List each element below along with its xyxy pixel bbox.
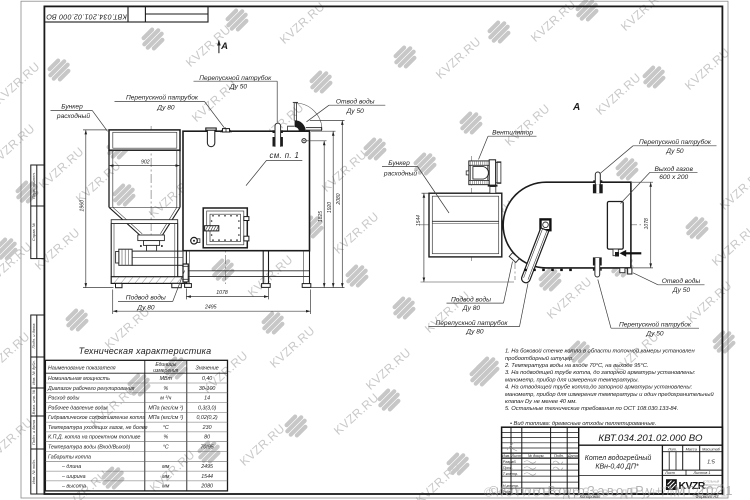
svg-text:1544: 1544: [201, 474, 213, 480]
svg-text:КВТ.034.201.02.000 ВО: КВТ.034.201.02.000 ВО: [46, 13, 127, 22]
svg-text:1078: 1078: [644, 218, 650, 229]
svg-text:©КотлоВодоЗаводРу+7МГ2021: ©КотлоВодоЗаводРу+7МГ2021: [489, 484, 735, 498]
svg-text:80: 80: [204, 435, 210, 441]
svg-text:Взам. инв. №: Взам. инв. №: [31, 389, 36, 414]
svg-text:– длина: – длина: [61, 464, 81, 470]
svg-text:• Вид топлива: древесные отх: • Вид топлива: древесные отходы пеллетир…: [510, 421, 656, 427]
svg-text:Подп. и дата: Подп. и дата: [31, 323, 36, 349]
svg-text:1:5: 1:5: [707, 460, 716, 466]
svg-text:14: 14: [204, 396, 210, 402]
svg-text:Ду 50: Ду 50: [672, 287, 691, 294]
svg-text:пробоотборный штуцер.: пробоотборный штуцер.: [505, 355, 574, 362]
svg-text:°С: °С: [163, 425, 169, 431]
svg-text:Инв. № дубл.: Инв. № дубл.: [31, 360, 36, 385]
svg-text:Дата: Дата: [567, 454, 578, 458]
svg-text:Ду 80: Ду 80: [136, 305, 155, 312]
svg-text:1920: 1920: [327, 202, 333, 213]
svg-text:Лист: Лист: [511, 454, 522, 458]
svg-text:Ду 50: Ду 50: [229, 84, 248, 91]
svg-text:Отвод воды: Отвод воды: [336, 98, 375, 106]
svg-text:30-100: 30-100: [199, 386, 216, 392]
svg-text:Габариты котла: Габариты котла: [48, 454, 91, 460]
svg-text:Листов 1: Листов 1: [693, 471, 711, 475]
svg-text:5. Остальные технические треб: 5. Остальные технические требования по О…: [505, 406, 678, 412]
svg-text:Температура уходящих газов, не: Температура уходящих газов, не более: [48, 425, 148, 431]
svg-text:А: А: [220, 41, 228, 52]
svg-text:1544: 1544: [416, 215, 422, 226]
svg-text:Ду 80: Ду 80: [156, 104, 175, 111]
svg-text:2080: 2080: [200, 484, 213, 490]
svg-text:м ³/ч: м ³/ч: [160, 396, 171, 402]
svg-text:см. п. 1: см. п. 1: [270, 151, 300, 160]
svg-text:А: А: [572, 102, 580, 113]
svg-text:мм: мм: [162, 464, 170, 470]
svg-text:Диапазон рабочего регулировани: Диапазон рабочего регулирования: [47, 386, 135, 392]
svg-text:Изм.: Изм.: [502, 454, 510, 458]
svg-text:Расход воды: Расход воды: [48, 396, 79, 402]
svg-text:Подвод воды: Подвод воды: [451, 295, 491, 303]
svg-text:манометр, прибор для измерени: манометр, прибор для измерения температу…: [505, 377, 639, 383]
svg-text:1. На боковой стенке котла в: 1. На боковой стенке котла в области топ…: [505, 348, 695, 355]
svg-text:мм: мм: [162, 484, 170, 490]
svg-text:Перепускной патрубок: Перепускной патрубок: [126, 94, 199, 102]
svg-text:Значение: Значение: [195, 366, 218, 372]
svg-text:0,3(3,0): 0,3(3,0): [198, 405, 216, 411]
svg-text:70/95: 70/95: [200, 445, 213, 451]
svg-text:2495: 2495: [204, 305, 217, 311]
svg-text:Пров.: Пров.: [503, 466, 513, 470]
svg-text:Наименование показателя: Наименование показателя: [48, 366, 116, 372]
svg-text:Выход газов: Выход газов: [654, 165, 693, 173]
svg-text:Ду 80: Ду 80: [465, 329, 484, 336]
svg-text:Подп. и дата: Подп. и дата: [31, 419, 36, 445]
svg-text:Ду 50: Ду 50: [346, 108, 365, 115]
svg-text:Ду 50: Ду 50: [665, 148, 684, 155]
svg-text:Ду 80: Ду 80: [462, 305, 481, 312]
svg-text:Бункер: Бункер: [388, 160, 410, 167]
svg-text:Бункер: Бункер: [61, 104, 83, 111]
svg-text:Рабочее давление воды: Рабочее давление воды: [48, 405, 107, 411]
svg-text:902: 902: [141, 159, 150, 165]
svg-text:Перепускной патрубок: Перепускной патрубок: [435, 319, 508, 327]
svg-text:0,40: 0,40: [202, 376, 212, 382]
svg-text:Разраб.: Разраб.: [503, 460, 517, 464]
svg-text:Ду 50: Ду 50: [645, 330, 664, 337]
svg-text:Перепускной патрубок: Перепускной патрубок: [639, 138, 712, 146]
svg-text:1825: 1825: [318, 211, 324, 222]
svg-text:Перв. примен.: Перв. примен.: [31, 172, 36, 199]
svg-text:Котел водогрейный: Котел водогрейный: [585, 454, 652, 462]
svg-text:600 х 200: 600 х 200: [659, 174, 688, 181]
svg-text:%: %: [163, 386, 168, 392]
svg-text:Гидравлическое сопротивление к: Гидравлическое сопротивление котла: [48, 415, 145, 421]
svg-text:Отвод воды: Отвод воды: [662, 277, 701, 285]
svg-text:%: %: [163, 435, 168, 441]
svg-text:манометр, прибор для измерения: манометр, прибор для измерения температу…: [505, 391, 714, 398]
svg-text:№ докум.: № докум.: [528, 454, 545, 458]
svg-text:Подп.: Подп.: [554, 454, 564, 458]
svg-text:расходный: расходный: [383, 169, 418, 177]
svg-text:МПа (кгс/см ²): МПа (кгс/см ²): [148, 405, 183, 411]
svg-text:0,02(0,2): 0,02(0,2): [196, 415, 217, 421]
svg-text:Справ. №: Справ. №: [31, 222, 36, 241]
svg-text:Т.контр.: Т.контр.: [503, 472, 518, 476]
svg-text:клапан Dу не менее 40 мм.: клапан Dу не менее 40 мм.: [505, 399, 577, 405]
svg-text:МПа (кгс/см ²): МПа (кгс/см ²): [148, 415, 183, 421]
svg-text:Перепускной патрубок: Перепускной патрубок: [199, 74, 272, 82]
svg-text:Подвод воды: Подвод воды: [126, 294, 166, 302]
svg-text:Техническая характеристика: Техническая характеристика: [79, 346, 212, 356]
svg-text:Номинальная мощность: Номинальная мощность: [48, 376, 110, 382]
svg-text:Лит.: Лит.: [667, 447, 677, 451]
svg-text:1078: 1078: [216, 290, 228, 296]
svg-text:КВн-0,40 ДП*: КВн-0,40 ДП*: [595, 463, 639, 470]
svg-text:МВт: МВт: [160, 376, 173, 382]
svg-text:1960: 1960: [80, 200, 86, 212]
svg-text:– высота: – высота: [61, 484, 86, 490]
svg-text:Масса: Масса: [686, 447, 697, 451]
svg-text:К.П.Д. котла на проектном топл: К.П.Д. котла на проектном топливе: [48, 435, 141, 441]
svg-text:мм: мм: [162, 474, 170, 480]
svg-text:Лист: Лист: [664, 471, 675, 475]
svg-text:расходный: расходный: [56, 112, 91, 120]
svg-text:2. Температура воды на входе: 2. Температура воды на входе 70°С, на вы…: [504, 363, 648, 369]
svg-text:Инв. № подл.: Инв. № подл.: [31, 459, 36, 484]
svg-text:°С: °С: [163, 445, 169, 451]
svg-text:измерения: измерения: [153, 368, 178, 374]
svg-text:2080: 2080: [336, 193, 342, 205]
svg-text:230: 230: [202, 425, 212, 431]
svg-text:4. На отводящей трубе котла,д: 4. На отводящей трубе котла,до запорной …: [505, 384, 693, 391]
svg-text:КВТ.034.201.02.000 ВО: КВТ.034.201.02.000 ВО: [598, 433, 703, 444]
svg-text:– ширина: – ширина: [61, 474, 86, 480]
svg-text:Перепускной патрубок: Перепускной патрубок: [619, 321, 692, 329]
svg-text:Вентилятор: Вентилятор: [492, 129, 533, 136]
svg-text:3. На подводящей трубе котла,: 3. На подводящей трубе котла, до запорно…: [505, 369, 696, 376]
svg-text:Температура воды (Вход/Выход): Температура воды (Вход/Выход): [48, 445, 130, 451]
svg-text:2495: 2495: [200, 464, 213, 470]
svg-text:Масштаб: Масштаб: [702, 447, 721, 451]
